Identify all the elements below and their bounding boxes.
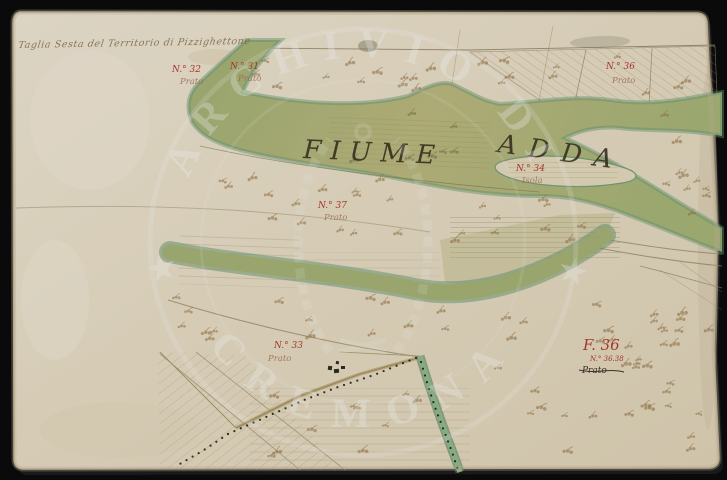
svg-text:Prato: Prato — [323, 213, 347, 223]
svg-text:N.° 36: N.° 36 — [605, 62, 635, 72]
svg-text:Prato: Prato — [179, 77, 203, 87]
svg-text:N.° 37: N.° 37 — [317, 201, 347, 211]
svg-text:N.° 36.38: N.° 36.38 — [589, 355, 624, 363]
svg-text:N.° 32: N.° 32 — [171, 65, 201, 75]
svg-text:N.° 33: N.° 33 — [273, 341, 303, 351]
svg-text:F. 36: F. 36 — [582, 336, 620, 354]
svg-text:Prato: Prato — [611, 76, 635, 86]
archival-photo: Taglia Sesta del Territorio di Pizzighet… — [0, 0, 727, 480]
map-scan: Taglia Sesta del Territorio di Pizzighet… — [0, 0, 727, 480]
